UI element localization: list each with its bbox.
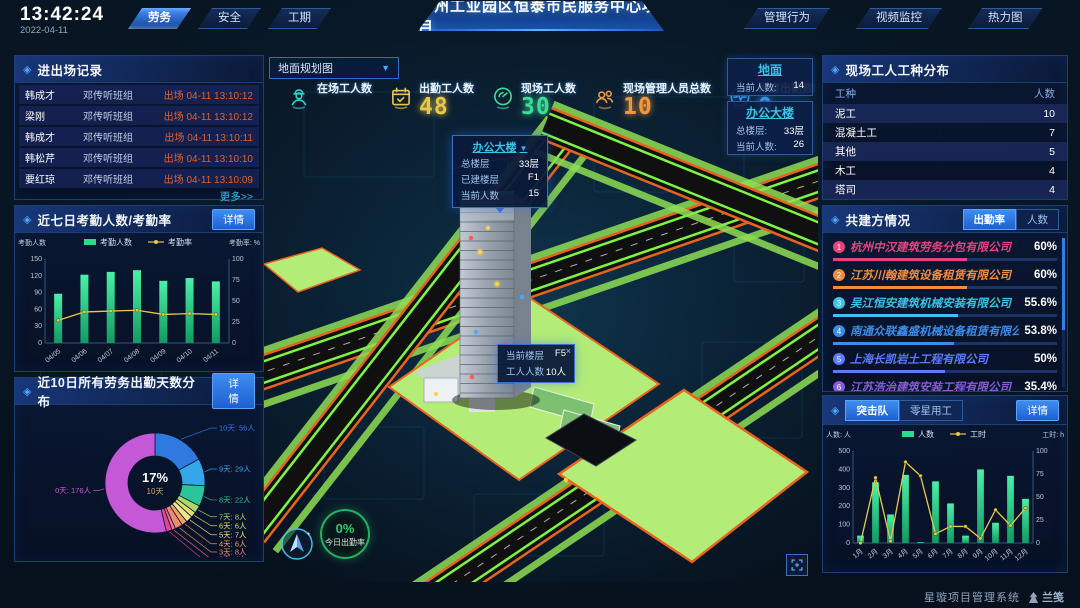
clock: 13:42:24 2022-04-11 xyxy=(20,5,104,36)
tooltip-value: 15 xyxy=(528,188,539,202)
floor-card-row: 当前人数:26 xyxy=(728,138,812,154)
compass-icon[interactable]: ✦ xyxy=(280,527,314,561)
people-icon xyxy=(592,84,618,110)
tooltip-value: F5 xyxy=(555,348,566,362)
title-banner: 苏州工业园区恒泰市民服务中心项目 xyxy=(418,1,664,31)
company-name: 江苏浩治建筑安装工程有限公司 xyxy=(850,379,1019,392)
worker-name: 韩成才 xyxy=(25,87,83,102)
svg-text:考勤率: 考勤率 xyxy=(168,237,192,247)
exit-event: 出场 04-11 13:10:12 xyxy=(164,108,253,123)
svg-text:6天: 6人: 6天: 6人 xyxy=(219,521,247,530)
exit-event: 出场 04-11 13:10:11 xyxy=(164,129,253,144)
worker-type: 木工 xyxy=(835,163,856,178)
svg-text:100: 100 xyxy=(232,256,244,263)
svg-text:04/05: 04/05 xyxy=(44,348,62,364)
diamond-icon: ◈ xyxy=(23,385,31,398)
work-group: 邓传听班组 xyxy=(83,108,164,123)
stat-现场工人数: 现场工人数30 xyxy=(490,80,576,118)
worker-count: 10 xyxy=(1043,108,1055,120)
svg-text:10天: 10天 xyxy=(147,487,164,496)
svg-text:10天: 56人: 10天: 56人 xyxy=(219,423,255,432)
column-header: 人数 xyxy=(1034,86,1055,101)
stat-value: 30 xyxy=(521,96,576,118)
worker-type: 其他 xyxy=(835,144,856,159)
scrollbar-track xyxy=(1062,238,1065,387)
floor-card-row: 总楼层:33层 xyxy=(728,122,812,138)
svg-text:300: 300 xyxy=(838,485,850,492)
pct-bar-fill xyxy=(833,370,945,373)
svg-text:2月: 2月 xyxy=(866,547,880,560)
title-underline xyxy=(418,29,664,31)
svg-text:0: 0 xyxy=(232,340,236,347)
svg-text:0: 0 xyxy=(846,540,850,547)
svg-text:0: 0 xyxy=(1036,540,1040,547)
topbar: 13:42:24 2022-04-11 劳务安全工期 苏州工业园区恒泰市民服务中… xyxy=(0,0,1080,42)
svg-text:6月: 6月 xyxy=(926,547,940,560)
floor-card-title[interactable]: 地面 xyxy=(728,59,812,79)
top-tab-安全[interactable]: 安全 xyxy=(198,8,261,29)
svg-text:100: 100 xyxy=(838,522,850,529)
rank-badge: 4 xyxy=(833,325,845,337)
work-group: 邓传听班组 xyxy=(83,87,164,102)
attendance-gauge: 0% 今日出勤率 xyxy=(320,509,370,559)
stat-label: 在场工人数 xyxy=(317,80,372,96)
pct-bar-fill xyxy=(833,286,967,289)
rank-badge: 2 xyxy=(833,269,845,281)
tooltip-key: 当前楼层 xyxy=(506,348,544,362)
clock-date: 2022-04-11 xyxy=(20,26,104,36)
pct-bar-track xyxy=(833,370,1057,373)
attendance-pct: 55.6% xyxy=(1024,297,1057,309)
svg-text:500: 500 xyxy=(838,448,850,455)
rank-badge: 6 xyxy=(833,381,845,392)
svg-text:75: 75 xyxy=(232,277,240,284)
pct-bar-fill xyxy=(833,258,967,261)
diamond-icon: ◈ xyxy=(831,213,839,226)
building-tooltip: 办公大楼▼ 总楼层33层已建楼层F1当前人数15 xyxy=(452,135,548,208)
worker-type-row: 混凝土工7 xyxy=(823,123,1067,142)
svg-text:8月: 8月 xyxy=(956,547,970,560)
floor-card-key: 当前人数: xyxy=(736,80,777,94)
partners-panel: ◈ 共建方情况 出勤率人数 1杭州中汉建筑劳务分包有限公司60%2江苏川翰建筑设… xyxy=(822,205,1068,392)
diamond-icon: ◈ xyxy=(831,404,839,417)
rank-badge: 1 xyxy=(833,241,845,253)
floor-card-value: 26 xyxy=(793,139,804,153)
svg-text:9天: 29人: 9天: 29人 xyxy=(219,465,251,474)
entry-exit-row: 韩松芹邓传听班组出场 04-11 13:10:10 xyxy=(19,148,259,167)
svg-text:0天: 176人: 0天: 176人 xyxy=(55,486,91,495)
fullscreen-button[interactable] xyxy=(786,554,808,576)
svg-text:12月: 12月 xyxy=(1013,547,1030,562)
top-tab-热力图[interactable]: 热力图 xyxy=(968,8,1043,29)
svg-text:75: 75 xyxy=(1036,471,1044,478)
top-tab-视频监控[interactable]: 视频监控 xyxy=(856,8,942,29)
map-area: 地面规划图 ▼ 在场工人数出勤工人数48现场工人数30现场管理人员总数10异常出… xyxy=(264,42,818,582)
panel-title: 近七日考勤人数/考勤率 xyxy=(37,210,171,229)
tooltip-key: 总楼层 xyxy=(461,156,490,170)
svg-text:25: 25 xyxy=(232,319,240,326)
tooltip-value: 33层 xyxy=(519,156,539,170)
svg-text:4月: 4月 xyxy=(896,547,910,560)
entry-exit-row: 梁刚邓传听班组出场 04-11 13:10:12 xyxy=(19,106,259,125)
layer-select-value: 地面规划图 xyxy=(278,60,333,76)
svg-text:7天: 8人: 7天: 8人 xyxy=(219,512,247,521)
gauge-value: 0% xyxy=(336,521,355,536)
svg-text:04/11: 04/11 xyxy=(202,348,220,364)
company-name: 杭州中汉建筑劳务分包有限公司 xyxy=(850,239,1029,255)
svg-text:04/10: 04/10 xyxy=(176,348,194,364)
footer-logo: 兰笺 xyxy=(1028,589,1064,605)
layer-select-dropdown[interactable]: 地面规划图 ▼ xyxy=(269,57,399,79)
rank-badge: 3 xyxy=(833,297,845,309)
svg-text:150: 150 xyxy=(30,256,42,263)
floor-card-value: 14 xyxy=(793,80,804,94)
panel-title: 现场工人工种分布 xyxy=(845,60,949,79)
rank-badge: 5 xyxy=(833,353,845,365)
topbar-right-tabs: 管理行为视频监控热力图 xyxy=(744,8,1043,29)
svg-text:9月: 9月 xyxy=(971,547,985,560)
close-icon[interactable]: × xyxy=(566,346,571,356)
detail-button[interactable]: 详情 xyxy=(212,209,255,230)
floor-card-办公大楼[interactable]: 办公大楼总楼层:33层当前人数:26 xyxy=(727,101,813,155)
svg-text:04/09: 04/09 xyxy=(149,348,167,364)
worker-name: 韩成才 xyxy=(25,129,83,144)
attendance-pct: 50% xyxy=(1034,353,1057,365)
svg-text:1月: 1月 xyxy=(851,547,865,560)
tooltip-key: 当前人数 xyxy=(461,188,499,202)
svg-text:200: 200 xyxy=(838,503,850,510)
worker-type-row: 其他5 xyxy=(823,142,1067,161)
svg-text:考勤人数: 考勤人数 xyxy=(100,237,132,247)
floor-card-title[interactable]: 办公大楼 xyxy=(728,102,812,122)
worker-count: 5 xyxy=(1049,146,1055,158)
worker-icon xyxy=(286,84,312,110)
brand-name: 星璇项目管理系统 xyxy=(924,589,1020,605)
stat-value: 48 xyxy=(419,96,474,118)
tooltip-row: 总楼层33层 xyxy=(453,155,547,171)
worker-count: 4 xyxy=(1049,165,1055,177)
top-tab-工期[interactable]: 工期 xyxy=(268,8,331,29)
worker-count: 4 xyxy=(1049,184,1055,196)
pct-bar-track xyxy=(833,258,1057,261)
attendance-pct: 60% xyxy=(1034,241,1057,253)
logo-icon xyxy=(1028,591,1039,604)
svg-text:11月: 11月 xyxy=(999,547,1015,562)
building-tooltip-title[interactable]: 办公大楼▼ xyxy=(453,136,547,155)
svg-text:考勤率: %: 考勤率: % xyxy=(229,238,260,247)
calendar-icon xyxy=(388,84,414,110)
svg-text:10月: 10月 xyxy=(983,547,1000,562)
diamond-icon: ◈ xyxy=(23,213,31,226)
worker-count: 7 xyxy=(1049,127,1055,139)
svg-text:人数: 人数 xyxy=(918,429,934,439)
partner-item: 4南通众联鑫盛机械设备租赁有限公司53.8% xyxy=(833,323,1057,345)
detail-button[interactable]: 详情 xyxy=(1016,400,1059,421)
partner-item: 2江苏川翰建筑设备租赁有限公司60% xyxy=(833,267,1057,289)
squad-chart: 人数: 人工时: h人数工时01002003004005000255075100… xyxy=(823,425,1067,569)
svg-text:04/07: 04/07 xyxy=(97,348,115,364)
page-title: 苏州工业园区恒泰市民服务中心项目 xyxy=(418,0,664,37)
gauge-label: 今日出勤率 xyxy=(325,537,365,548)
attendance-panel: ◈ 近七日考勤人数/考勤率 详情 考勤人数考勤率: %考勤人数考勤率030609… xyxy=(14,205,264,372)
entry-exit-panel: ◈ 进出场记录 韩成才邓传听班组出场 04-11 13:10:12梁刚邓传听班组… xyxy=(14,55,264,200)
worker-type: 泥工 xyxy=(835,106,856,121)
floor-card-key: 当前人数: xyxy=(736,139,777,153)
svg-text:100: 100 xyxy=(1036,448,1048,455)
svg-text:04/08: 04/08 xyxy=(123,348,141,364)
worker-type-row: 木工4 xyxy=(823,161,1067,180)
more-link[interactable]: 更多>> xyxy=(15,188,263,204)
partner-item: 5上海长凯岩土工程有限公司50% xyxy=(833,351,1057,373)
exit-event: 出场 04-11 13:10:09 xyxy=(164,171,253,186)
tooltip-key: 工人人数 xyxy=(506,364,544,378)
attendance-pct: 53.8% xyxy=(1024,325,1057,337)
entry-exit-row: 要红琼邓传听班组出场 04-11 13:10:09 xyxy=(19,169,259,188)
svg-text:工时: h: 工时: h xyxy=(1042,430,1064,439)
attendance-chart: 考勤人数考勤率: %考勤人数考勤率03060901201500255075100… xyxy=(15,233,263,369)
svg-text:7月: 7月 xyxy=(941,547,955,560)
chevron-down-icon: ▼ xyxy=(381,63,390,73)
attendance-pct: 60% xyxy=(1034,269,1057,281)
partner-item: 3吴江恒安建筑机械安装有限公司55.6% xyxy=(833,295,1057,317)
stat-value: 10 xyxy=(623,96,711,118)
svg-text:30: 30 xyxy=(34,323,42,330)
pct-bar-track xyxy=(833,286,1057,289)
svg-text:人数: 人: 人数: 人 xyxy=(826,430,851,439)
tooltip-value: F1 xyxy=(528,172,539,186)
detail-button[interactable]: 详情 xyxy=(212,373,255,409)
company-name: 上海长凯岩土工程有限公司 xyxy=(850,351,1029,367)
floor-card-key: 总楼层: xyxy=(736,123,767,137)
floor-card-地面[interactable]: 地面当前人数:14 xyxy=(727,58,813,96)
diamond-icon: ◈ xyxy=(831,63,839,76)
svg-text:90: 90 xyxy=(34,290,42,297)
partner-item: 1杭州中汉建筑劳务分包有限公司60% xyxy=(833,239,1057,261)
topbar-left-tabs: 劳务安全工期 xyxy=(128,8,331,29)
exit-event: 出场 04-11 13:10:10 xyxy=(164,150,253,165)
floor-card-value: 33层 xyxy=(784,123,804,137)
svg-text:400: 400 xyxy=(838,466,850,473)
svg-text:50: 50 xyxy=(1036,494,1044,501)
squad-tabs: 突击队零星用工 xyxy=(845,400,963,421)
work-group: 邓传听班组 xyxy=(83,129,164,144)
svg-text:25: 25 xyxy=(1036,517,1044,524)
clock-time: 13:42:24 xyxy=(20,5,104,25)
column-header: 工种 xyxy=(835,86,856,101)
distribution-donut-chart: 10天: 56人9天: 29人8天: 22人7天: 8人6天: 6人5天: 7人… xyxy=(15,405,263,557)
svg-text:8天: 22人: 8天: 22人 xyxy=(219,495,251,504)
expand-icon xyxy=(790,558,804,572)
work-group: 邓传听班组 xyxy=(83,171,164,186)
stat-现场管理人员总数: 现场管理人员总数10 xyxy=(592,80,711,118)
partner-tab-人数[interactable]: 人数 xyxy=(1016,209,1059,230)
svg-text:60: 60 xyxy=(34,306,42,313)
logo-text: 兰笺 xyxy=(1042,589,1064,605)
worker-name: 梁刚 xyxy=(25,108,83,123)
company-name: 南通众联鑫盛机械设备租赁有限公司 xyxy=(850,323,1019,339)
partner-tab-出勤率[interactable]: 出勤率 xyxy=(963,209,1017,230)
squad-tab-突击队[interactable]: 突击队 xyxy=(845,400,899,421)
worker-type-row: 泥工10 xyxy=(823,104,1067,123)
svg-text:04/06: 04/06 xyxy=(71,348,89,364)
worker-types-panel: ◈ 现场工人工种分布 工种人数 泥工10混凝土工7其他5木工4塔司4 xyxy=(822,55,1068,200)
footer: 星璇项目管理系统 兰笺 xyxy=(924,589,1064,605)
scrollbar-thumb[interactable] xyxy=(1062,238,1065,330)
entry-exit-row: 韩成才邓传听班组出场 04-11 13:10:11 xyxy=(19,127,259,146)
pct-bar-track xyxy=(833,314,1057,317)
pct-bar-fill xyxy=(833,314,958,317)
svg-text:3月: 3月 xyxy=(881,547,895,560)
entry-exit-row: 韩成才邓传听班组出场 04-11 13:10:12 xyxy=(19,85,259,104)
worker-type: 混凝土工 xyxy=(835,125,877,140)
tooltip-row: 已建楼层F1 xyxy=(453,171,547,187)
chevron-down-icon: ▼ xyxy=(520,144,528,153)
worker-name: 要红琼 xyxy=(25,171,83,186)
tooltip-row: 工人人数10人 xyxy=(498,363,574,379)
worker-type-row: 塔司4 xyxy=(823,180,1067,199)
tooltip-row: 当前楼层F5 xyxy=(498,347,574,363)
tooltip-key: 已建楼层 xyxy=(461,172,499,186)
panel-title: 进出场记录 xyxy=(37,60,102,79)
tooltip-row: 当前人数15 xyxy=(453,187,547,203)
svg-text:50: 50 xyxy=(232,298,240,305)
squad-panel: ◈ 突击队零星用工 详情 人数: 人工时: h人数工时0100200300400… xyxy=(822,395,1068,573)
attendance-pct: 35.4% xyxy=(1024,381,1057,392)
panel-title: 共建方情况 xyxy=(845,210,910,229)
floor-card-row: 当前人数:14 xyxy=(728,79,812,95)
tooltip-pointer xyxy=(495,207,505,213)
svg-text:考勤人数: 考勤人数 xyxy=(18,238,46,247)
work-group: 邓传听班组 xyxy=(83,150,164,165)
worker-type: 塔司 xyxy=(835,182,856,197)
top-tab-管理行为[interactable]: 管理行为 xyxy=(744,8,830,29)
table-header: 工种人数 xyxy=(823,83,1067,104)
svg-text:17%: 17% xyxy=(142,470,168,485)
svg-text:5天: 7人: 5天: 7人 xyxy=(219,530,247,539)
worker-name: 韩松芹 xyxy=(25,150,83,165)
top-tab-劳务[interactable]: 劳务 xyxy=(128,8,191,29)
gauge-icon xyxy=(490,84,516,110)
svg-text:工时: 工时 xyxy=(970,429,986,439)
squad-tab-零星用工[interactable]: 零星用工 xyxy=(899,400,963,421)
partner-item: 6江苏浩治建筑安装工程有限公司35.4% xyxy=(833,379,1057,392)
svg-text:0: 0 xyxy=(38,340,42,347)
pct-bar-track xyxy=(833,342,1057,345)
svg-text:✦: ✦ xyxy=(306,531,311,538)
stat-出勤工人数: 出勤工人数48 xyxy=(388,80,474,118)
company-name: 江苏川翰建筑设备租赁有限公司 xyxy=(850,267,1029,283)
exit-event: 出场 04-11 13:10:12 xyxy=(164,87,253,102)
svg-text:120: 120 xyxy=(30,273,42,280)
diamond-icon: ◈ xyxy=(23,63,31,76)
stat-在场工人数: 在场工人数 xyxy=(286,80,372,110)
distribution-panel: ◈ 近10日所有劳务出勤天数分布 详情 10天: 56人9天: 29人8天: 2… xyxy=(14,377,264,562)
tooltip-value: 10人 xyxy=(546,364,566,378)
company-name: 吴江恒安建筑机械安装有限公司 xyxy=(850,295,1019,311)
svg-text:5月: 5月 xyxy=(911,547,925,560)
pct-bar-fill xyxy=(833,342,954,345)
floor-tooltip: × 当前楼层F5工人人数10人 xyxy=(497,344,575,383)
svg-text:2天: 4人: 2天: 4人 xyxy=(219,555,247,558)
partner-tabs: 出勤率人数 xyxy=(963,209,1060,230)
